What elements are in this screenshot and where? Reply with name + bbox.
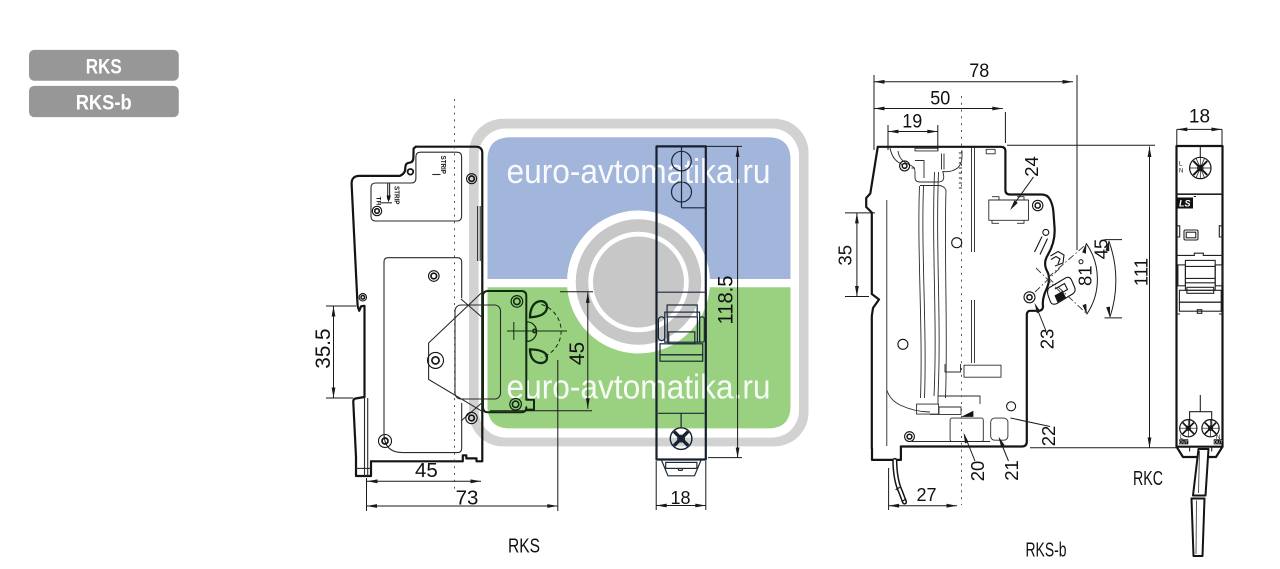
svg-text:STRIP: STRIP bbox=[439, 156, 446, 175]
svg-text:RKS: RKS bbox=[508, 536, 540, 558]
svg-text:RKS: RKS bbox=[86, 55, 122, 78]
svg-text:RKS-b: RKS-b bbox=[76, 92, 132, 115]
svg-text:OUT: OUT bbox=[1214, 439, 1223, 444]
svg-text:LS: LS bbox=[1179, 199, 1191, 209]
svg-text:18: 18 bbox=[670, 488, 690, 508]
svg-text:78: 78 bbox=[969, 61, 989, 82]
svg-text:45: 45 bbox=[415, 459, 438, 482]
svg-text:OUT: OUT bbox=[1179, 439, 1188, 444]
svg-text:45: 45 bbox=[1091, 239, 1112, 260]
svg-text:STRIP: STRIP bbox=[393, 186, 400, 205]
svg-text:20: 20 bbox=[967, 461, 988, 482]
svg-text:23: 23 bbox=[1037, 329, 1058, 350]
svg-text:N: N bbox=[1179, 169, 1183, 175]
svg-text:73: 73 bbox=[456, 487, 479, 510]
svg-text:RKS-b: RKS-b bbox=[1026, 540, 1067, 562]
svg-text:27: 27 bbox=[916, 485, 936, 505]
svg-text:euro-avtomatika.ru: euro-avtomatika.ru bbox=[507, 153, 771, 191]
svg-text:81°: 81° bbox=[1075, 258, 1096, 286]
svg-text:35: 35 bbox=[834, 245, 855, 266]
svg-text:TH: TH bbox=[375, 197, 382, 206]
svg-text:45: 45 bbox=[566, 342, 589, 365]
svg-text:111: 111 bbox=[1131, 258, 1152, 286]
svg-text:RKC: RKC bbox=[1133, 468, 1163, 490]
svg-text:50: 50 bbox=[930, 88, 950, 109]
svg-text:24: 24 bbox=[1021, 156, 1042, 177]
svg-text:21: 21 bbox=[1001, 460, 1022, 481]
svg-text:18: 18 bbox=[1189, 107, 1210, 128]
svg-text:euro-avtomatika.ru: euro-avtomatika.ru bbox=[507, 369, 771, 407]
svg-text:19: 19 bbox=[902, 111, 922, 132]
svg-text:118.5: 118.5 bbox=[714, 276, 737, 325]
svg-text:22: 22 bbox=[1038, 426, 1059, 447]
svg-text:35.5: 35.5 bbox=[312, 329, 335, 369]
